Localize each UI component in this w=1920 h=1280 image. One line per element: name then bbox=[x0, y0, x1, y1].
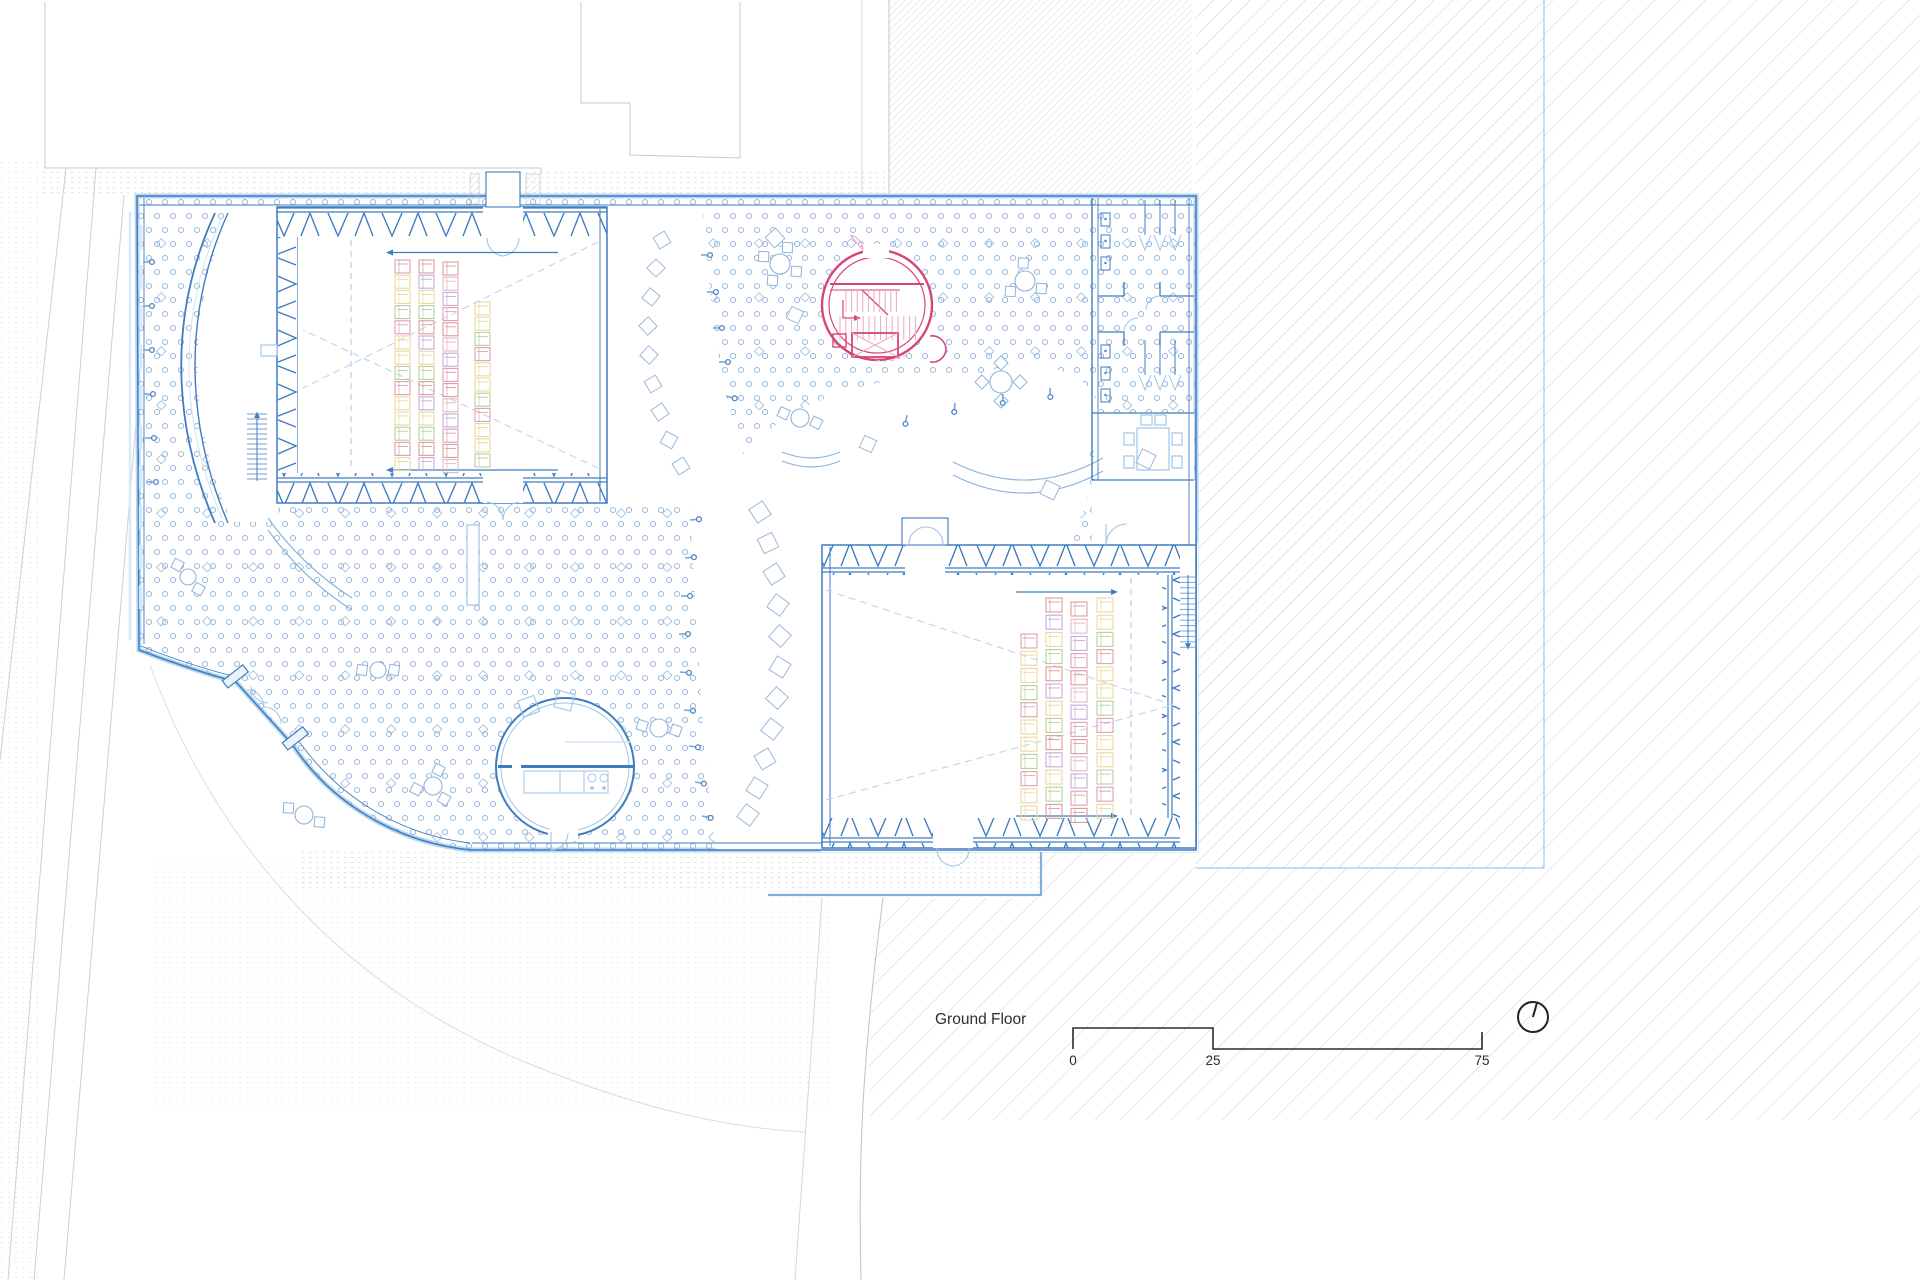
floor-plan-sheet: Ground Floor 0 25 75 bbox=[0, 0, 1920, 1280]
hatch-pier bbox=[526, 174, 540, 204]
floor-plan-drawing: Ground Floor 0 25 75 bbox=[0, 0, 1920, 1280]
site-hatch-dense-strip bbox=[889, 0, 1192, 195]
site-parcel-blue-hatch bbox=[1196, 0, 1544, 868]
site-building-outline-2 bbox=[581, 2, 740, 158]
vestibule-top bbox=[486, 172, 520, 207]
hatch-pier bbox=[470, 174, 479, 204]
site-paving-north bbox=[40, 168, 885, 195]
site-building-outline-1 bbox=[45, 2, 541, 174]
terrace-paving bbox=[300, 852, 1041, 892]
control-desk bbox=[261, 345, 277, 356]
auditorium-b bbox=[822, 518, 1196, 866]
floor-label: Ground Floor bbox=[935, 1011, 1026, 1028]
scale-tick-0: 0 bbox=[1069, 1053, 1077, 1068]
scale-tick-25: 25 bbox=[1205, 1053, 1220, 1068]
scale-tick-75: 75 bbox=[1474, 1053, 1489, 1068]
bench-rect bbox=[467, 525, 479, 605]
